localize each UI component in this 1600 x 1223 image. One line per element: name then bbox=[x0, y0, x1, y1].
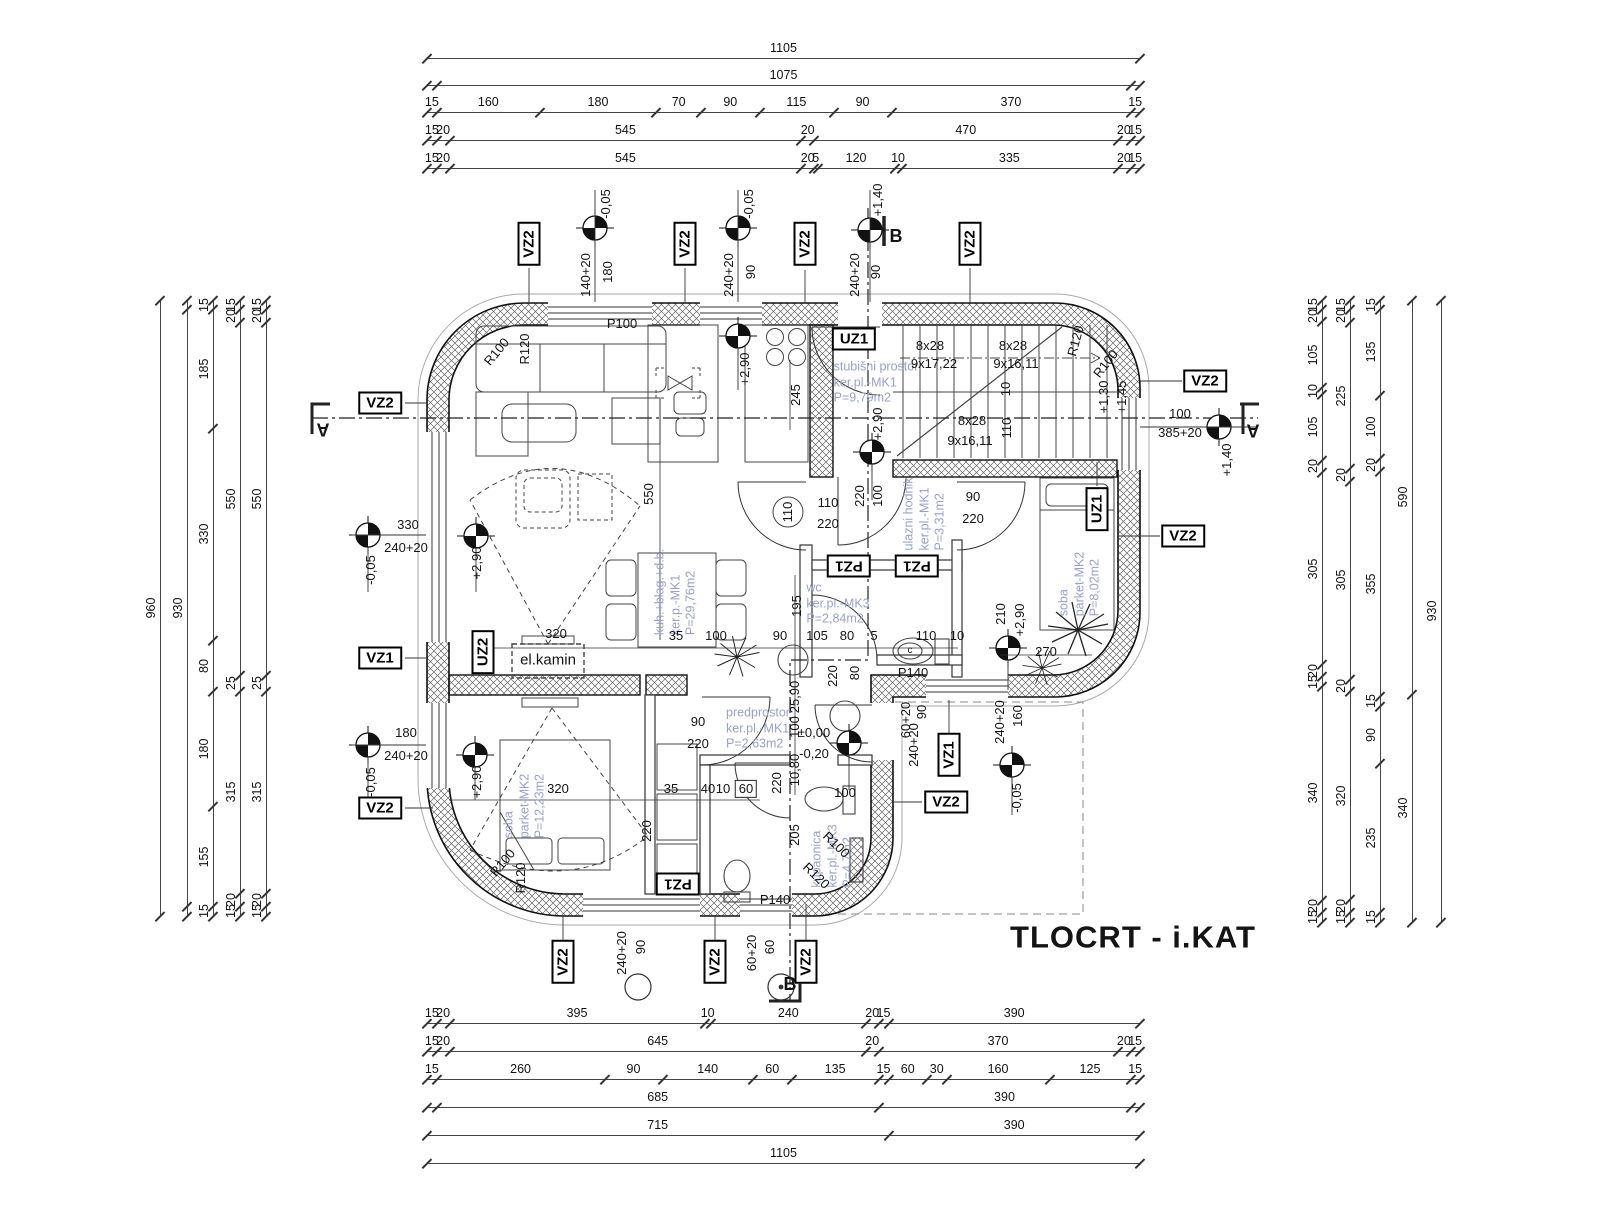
dim-label: 320 bbox=[1334, 785, 1348, 806]
dim-label: 390 bbox=[1004, 1118, 1025, 1132]
dim-line bbox=[427, 1079, 1140, 1080]
plan-label: R120 bbox=[517, 333, 533, 364]
dim-label: 135 bbox=[825, 1062, 846, 1076]
dim-label: 545 bbox=[615, 151, 636, 165]
dim-label: 715 bbox=[647, 1118, 668, 1132]
plan-label: 35 bbox=[669, 628, 683, 644]
plan-label: 40 bbox=[701, 781, 715, 797]
plan-label: VZ2 bbox=[358, 797, 402, 820]
dim-label: 395 bbox=[567, 1006, 588, 1020]
plan-label: 270 bbox=[1035, 644, 1057, 660]
dim-label: 105 bbox=[1306, 417, 1320, 438]
plan-label: VZ2 bbox=[674, 222, 697, 266]
dim-label: 260 bbox=[510, 1062, 531, 1076]
plan-label: 10 bbox=[716, 781, 730, 797]
dim-line bbox=[427, 1135, 1140, 1136]
dim-label: 15 bbox=[877, 1006, 891, 1020]
dim-label: 15 bbox=[1128, 95, 1142, 109]
plan-label: 90 bbox=[691, 714, 705, 730]
dim-label: 160 bbox=[478, 95, 499, 109]
dim-label: 20 bbox=[1334, 309, 1348, 323]
dim-chain: 1105 bbox=[427, 41, 1140, 61]
dim-chain: 1520545204702015 bbox=[427, 123, 1140, 143]
plan-label: PZ1 bbox=[656, 873, 700, 896]
plan-label: VZ2 bbox=[795, 940, 818, 984]
dim-label: 20 bbox=[1334, 468, 1348, 482]
plan-label: 110 bbox=[999, 418, 1015, 439]
dim-label: 20 bbox=[224, 309, 238, 323]
dim-label: 20 bbox=[436, 1006, 450, 1020]
dim-label: 15 bbox=[197, 298, 211, 312]
dim-line bbox=[187, 300, 188, 916]
dim-label: 335 bbox=[999, 151, 1020, 165]
dim-label: 105 bbox=[1306, 345, 1320, 366]
plan-label: UZ1 bbox=[832, 328, 876, 351]
plan-label: B bbox=[890, 225, 903, 248]
plan-label: 8x28 bbox=[958, 413, 986, 429]
furniture-kitchen-dining bbox=[606, 325, 808, 647]
plan-label: R120 bbox=[513, 862, 529, 893]
plan-label: 9x16,11 bbox=[993, 356, 1038, 372]
plan-label: UZ2 bbox=[472, 630, 495, 674]
plan-label: soba parket-MK2 P=12,23m2 bbox=[502, 774, 549, 839]
dim-chain: 1520550253152015 bbox=[251, 300, 271, 916]
plan-label: 90 bbox=[966, 489, 980, 505]
dim-line bbox=[427, 140, 1140, 141]
dim-chain: 1520545205120103352015 bbox=[427, 151, 1140, 171]
plan-label: -0,05 bbox=[1009, 783, 1025, 813]
plan-label: 110 bbox=[916, 628, 937, 644]
dim-label: 155 bbox=[197, 846, 211, 867]
plan-label: 320 bbox=[545, 626, 567, 642]
dim-label: 20 bbox=[436, 1034, 450, 1048]
dim-label: 15 bbox=[1306, 675, 1320, 689]
plan-label: 110 bbox=[780, 502, 796, 523]
dim-label: 225 bbox=[1334, 385, 1348, 406]
plan-label: 90 bbox=[914, 705, 930, 719]
dim-line bbox=[427, 85, 1140, 86]
plan-label: 10 bbox=[998, 382, 1014, 396]
plan-label: 110 bbox=[818, 495, 839, 511]
plan-label: 220 bbox=[687, 736, 709, 752]
plan-label: 80 bbox=[840, 628, 854, 644]
plan-label: VZ2 bbox=[552, 940, 575, 984]
plan-label: PZ1 bbox=[895, 555, 939, 578]
plan-label: +1,40 bbox=[1219, 444, 1235, 477]
dim-line bbox=[427, 1163, 1140, 1164]
plan-label: 90 bbox=[743, 265, 759, 279]
dim-line bbox=[213, 300, 214, 916]
plan-label: VZ2 bbox=[1161, 525, 1205, 548]
dim-label: 15 bbox=[1128, 123, 1142, 137]
dim-label: 15 bbox=[250, 904, 264, 918]
dim-label: 390 bbox=[994, 1090, 1015, 1104]
dim-label: 60 bbox=[901, 1062, 915, 1076]
dim-label: 60 bbox=[765, 1062, 779, 1076]
plan-label: 25,90 bbox=[787, 681, 803, 714]
dim-label: 80 bbox=[197, 659, 211, 673]
plan-label: 60+20 bbox=[744, 935, 760, 972]
dim-chain: 1520105101052030520153402015 bbox=[1307, 300, 1327, 922]
dim-label: 15 bbox=[877, 1062, 891, 1076]
dim-chain: 715390 bbox=[427, 1118, 1140, 1138]
plan-label: 240+20 bbox=[847, 253, 863, 297]
dim-label: 20 bbox=[436, 151, 450, 165]
dim-label: 20 bbox=[250, 309, 264, 323]
dim-line bbox=[427, 1107, 1140, 1108]
dim-label: 470 bbox=[955, 123, 976, 137]
plan-label: predprostor ker.pl.-MK1 P=2,63m2 bbox=[726, 706, 790, 753]
plan-label: 100 bbox=[705, 628, 727, 644]
dim-label: 15 bbox=[1364, 694, 1378, 708]
dim-line bbox=[427, 168, 1140, 169]
dim-label: 930 bbox=[1425, 601, 1439, 622]
plan-label: +2,90 bbox=[737, 353, 753, 386]
plan-label: VZ1 bbox=[358, 647, 402, 670]
dim-label: 120 bbox=[846, 151, 867, 165]
plan-label: 245 bbox=[788, 384, 804, 406]
dim-label: 125 bbox=[1080, 1062, 1101, 1076]
plan-label: 8x28 bbox=[916, 338, 944, 354]
dim-label: 1105 bbox=[770, 1146, 797, 1160]
dim-chain: 1075 bbox=[427, 68, 1140, 88]
dim-label: 15 bbox=[224, 904, 238, 918]
plan-label: -0,05 bbox=[741, 189, 757, 219]
dim-label: 370 bbox=[988, 1034, 1009, 1048]
dim-label: 390 bbox=[1004, 1006, 1025, 1020]
plan-label: 8x28 bbox=[999, 338, 1027, 354]
dim-label: 185 bbox=[197, 359, 211, 380]
dim-label: 550 bbox=[250, 488, 264, 509]
plan-label: P140 bbox=[760, 892, 790, 908]
plan-label: 220 bbox=[769, 772, 785, 794]
dim-label: 20 bbox=[1334, 679, 1348, 693]
plan-label: +2,90 bbox=[469, 766, 485, 799]
dim-chain: 1105 bbox=[427, 1146, 1140, 1166]
plan-label: +1,45 bbox=[1114, 381, 1130, 414]
plan-label: 210 bbox=[993, 603, 1009, 625]
plan-label: 160 bbox=[1010, 705, 1026, 727]
dim-label: 25 bbox=[250, 676, 264, 690]
dim-chain: 930 bbox=[172, 300, 192, 916]
dim-label: 10 bbox=[891, 151, 905, 165]
plan-label: P100 bbox=[607, 316, 637, 332]
dim-label: 25 bbox=[224, 676, 238, 690]
plan-label: 240+20 bbox=[992, 700, 1008, 744]
dim-label: 15 bbox=[425, 95, 439, 109]
dim-label: 550 bbox=[224, 488, 238, 509]
dim-label: 90 bbox=[723, 95, 737, 109]
plan-label: 220 bbox=[962, 511, 984, 527]
plan-label: 9x16,11 bbox=[947, 433, 992, 449]
dim-chain: 590340 bbox=[1397, 300, 1417, 922]
dim-label: 20 bbox=[865, 1034, 879, 1048]
plan-label: VZ2 bbox=[358, 392, 402, 415]
dim-label: 1075 bbox=[770, 68, 798, 82]
dim-label: 90 bbox=[1364, 728, 1378, 742]
dim-chain: 960 bbox=[145, 300, 165, 916]
plan-label: VZ2 bbox=[794, 222, 817, 266]
dim-label: 160 bbox=[988, 1062, 1009, 1076]
plan-label: 240+20 bbox=[721, 253, 737, 297]
dim-label: 15 bbox=[1128, 151, 1142, 165]
plan-label: 90 bbox=[773, 628, 787, 644]
plan-label: 100 bbox=[870, 485, 886, 507]
plan-label: 90 bbox=[633, 940, 649, 954]
plan-label: c bbox=[908, 645, 913, 658]
dim-label: 20 bbox=[436, 123, 450, 137]
plan-label: soba parket-MK2 P=8,02m2 bbox=[1057, 552, 1104, 617]
plan-label: VZ2 bbox=[924, 791, 968, 814]
plan-label: 10 bbox=[950, 628, 964, 644]
dim-label: 15 bbox=[1334, 910, 1348, 924]
dim-line bbox=[240, 300, 241, 916]
dim-label: 15 bbox=[425, 1062, 439, 1076]
plan-label: B bbox=[784, 973, 797, 996]
plan-label: 90 bbox=[868, 265, 884, 279]
plan-label: stubišni prostor ker.pl.-MK1 P=9,79m2 bbox=[834, 360, 919, 407]
dim-label: 15 bbox=[1306, 910, 1320, 924]
section-lines bbox=[312, 208, 1259, 1001]
dim-label: 100 bbox=[1364, 417, 1378, 438]
dim-label: 20 bbox=[1364, 458, 1378, 472]
plan-label: 5 bbox=[870, 628, 877, 644]
plan-label: P140 bbox=[898, 665, 928, 681]
dim-chain: 1513510020355159023515 bbox=[1365, 300, 1385, 922]
plan-label: 100 bbox=[787, 716, 803, 738]
dim-label: 305 bbox=[1334, 570, 1348, 591]
plan-label: -0,05 bbox=[363, 555, 379, 585]
plan-label: 140+20 bbox=[578, 253, 594, 297]
dim-label: 90 bbox=[856, 95, 870, 109]
dim-label: 5 bbox=[812, 151, 819, 165]
plan-label: ulazni hodnik ker.pl.-MK1 P=3,31m2 bbox=[902, 478, 949, 551]
dim-label: 15 bbox=[1128, 1062, 1142, 1076]
plan-label: 220 bbox=[639, 820, 655, 842]
plan-label: VZ2 bbox=[1183, 370, 1227, 393]
plan-label: 9x17,22 bbox=[911, 356, 957, 372]
dim-label: 305 bbox=[1306, 558, 1320, 579]
dim-chain: 152022520305203202015 bbox=[1335, 300, 1355, 922]
dim-label: 645 bbox=[647, 1034, 668, 1048]
plan-label: VZ2 bbox=[959, 222, 982, 266]
plan-label: 180 bbox=[395, 725, 417, 741]
plan-label: 105 bbox=[806, 628, 828, 644]
drawing-title: TLOCRT - i.KAT bbox=[1010, 919, 1256, 958]
floorplan-canvas: TLOCRT - i.KAT -0,05140+20180-0,05240+20… bbox=[0, 0, 1600, 1223]
plan-label: -0,05 bbox=[598, 189, 614, 219]
dim-chain: 15260901406013515603016012515 bbox=[427, 1062, 1140, 1082]
dim-label: 15 bbox=[1364, 910, 1378, 924]
dim-label: 180 bbox=[197, 739, 211, 760]
dim-chain: 1520550253152015 bbox=[225, 300, 245, 916]
dim-label: 340 bbox=[1396, 798, 1410, 819]
plan-label: 320 bbox=[547, 781, 569, 797]
plan-label: +2,90 bbox=[1012, 604, 1028, 637]
plan-label: UZ1 bbox=[1086, 487, 1109, 531]
dim-label: 135 bbox=[1364, 342, 1378, 363]
dim-label: 15 bbox=[197, 904, 211, 918]
dim-label: 20 bbox=[1306, 309, 1320, 323]
plan-label: 240+20 bbox=[384, 540, 428, 556]
plan-label: wc ker.pl.-MK3 P=2,84m2 bbox=[806, 581, 869, 628]
dim-line bbox=[1350, 300, 1351, 922]
plan-label: VZ1 bbox=[938, 733, 961, 777]
dim-label: 590 bbox=[1396, 487, 1410, 508]
plan-label: 330 bbox=[397, 517, 419, 533]
dim-label: 15 bbox=[1364, 298, 1378, 312]
plan-label: VZ2 bbox=[518, 222, 541, 266]
dim-label: 355 bbox=[1364, 574, 1378, 595]
dim-label: 15 bbox=[1128, 1034, 1142, 1048]
dim-line bbox=[266, 300, 267, 916]
plan-label: 205 bbox=[787, 824, 803, 846]
dim-label: 70 bbox=[672, 95, 686, 109]
plan-label: 60 bbox=[735, 780, 757, 798]
dim-label: 315 bbox=[224, 782, 238, 803]
plan-label: A bbox=[317, 418, 330, 441]
dim-label: 10 bbox=[701, 1006, 715, 1020]
dim-label: 685 bbox=[647, 1090, 668, 1104]
plan-label: 220 bbox=[852, 485, 868, 507]
dim-label: 545 bbox=[615, 123, 636, 137]
dim-chain: 1520395102402015390 bbox=[427, 1006, 1140, 1026]
plan-label: 240+20 bbox=[614, 931, 630, 975]
plan-label: 220 bbox=[825, 665, 841, 687]
plan-label: PZ1 bbox=[827, 555, 871, 578]
dim-chain: 930 bbox=[1426, 300, 1446, 922]
plan-label: 240+20 bbox=[384, 748, 428, 764]
plan-label: 180 bbox=[600, 261, 616, 283]
dim-label: 90 bbox=[627, 1062, 641, 1076]
dim-chain: 1520645203702015 bbox=[427, 1034, 1140, 1054]
dim-line bbox=[160, 300, 161, 916]
dim-label: 960 bbox=[144, 598, 158, 619]
plan-label: 80 bbox=[847, 666, 863, 680]
plan-label: 240+20 bbox=[906, 723, 922, 767]
plan-label: +2,90 bbox=[870, 408, 886, 441]
dim-label: 315 bbox=[250, 782, 264, 803]
dim-label: 1105 bbox=[770, 41, 797, 55]
dim-chain: 151853308018015515 bbox=[198, 300, 218, 916]
plan-label: el.kamin bbox=[520, 652, 576, 671]
plan-label: -0,20 bbox=[799, 746, 829, 762]
dim-label: 240 bbox=[778, 1006, 799, 1020]
plan-label: 10,80 bbox=[787, 754, 803, 787]
dim-line bbox=[427, 1023, 1140, 1024]
plan-label: 35 bbox=[664, 781, 678, 797]
plan-label: -0,05 bbox=[363, 767, 379, 797]
dim-label: 30 bbox=[930, 1062, 944, 1076]
dim-label: 235 bbox=[1364, 827, 1378, 848]
dim-label: 370 bbox=[1001, 95, 1022, 109]
plan-label: kuh.+blag.+d.b. ker.p.-MK1 P=29,76m2 bbox=[653, 549, 700, 635]
plan-label: 220 bbox=[817, 516, 839, 532]
dim-line bbox=[427, 112, 1140, 113]
plan-label: 385+20 bbox=[1158, 425, 1202, 441]
dim-chain: 685390 bbox=[427, 1090, 1140, 1110]
dim-label: 930 bbox=[171, 598, 185, 619]
plan-label: VZ2 bbox=[704, 940, 727, 984]
dim-line bbox=[1412, 300, 1413, 922]
dim-line bbox=[1441, 300, 1442, 922]
dim-label: 180 bbox=[588, 95, 609, 109]
dim-label: 140 bbox=[697, 1062, 718, 1076]
plan-label: +1,40 bbox=[870, 184, 886, 217]
dim-line bbox=[427, 58, 1140, 59]
dim-label: 340 bbox=[1306, 783, 1320, 804]
plan-label: 100 bbox=[1169, 406, 1191, 422]
plan-label: 550 bbox=[641, 483, 657, 505]
plan-label: 60 bbox=[762, 940, 778, 954]
dim-chain: 1516018070901159037015 bbox=[427, 95, 1140, 115]
dim-label: 330 bbox=[197, 524, 211, 545]
plan-label: 100 bbox=[834, 785, 856, 801]
plan-label: 195 bbox=[789, 595, 805, 617]
dim-line bbox=[427, 1051, 1140, 1052]
dim-label: 20 bbox=[801, 123, 815, 137]
dim-label: 115 bbox=[786, 95, 806, 109]
plan-label: A bbox=[1247, 419, 1260, 442]
plan-label: +1,30 bbox=[1096, 381, 1112, 414]
plan-label: +2,90 bbox=[469, 547, 485, 580]
dim-label: 20 bbox=[1306, 460, 1320, 474]
